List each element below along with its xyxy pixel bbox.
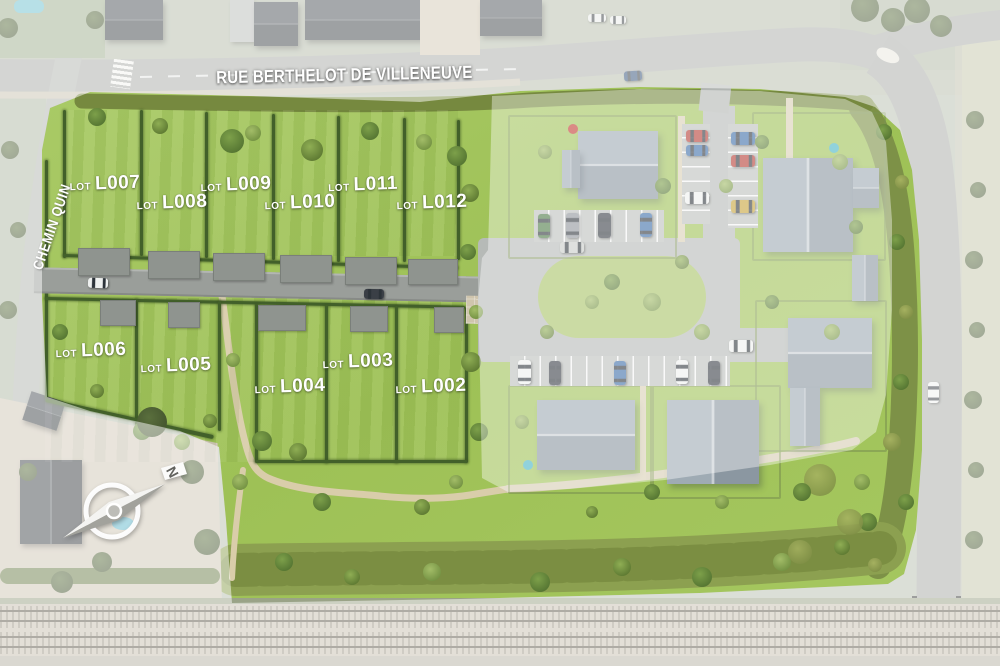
lot-label-L008[interactable]: LOTL008 [136,191,208,215]
lot-label-L009[interactable]: LOTL009 [200,173,272,197]
compass-rose: N [45,458,195,558]
lot-label-L012[interactable]: LOTL012 [396,191,468,215]
lot-label-L002[interactable]: LOTL002 [395,375,467,399]
lot-label-L006[interactable]: LOTL006 [55,339,127,363]
lot-label-L005[interactable]: LOTL005 [140,354,212,378]
lot-label-L003[interactable]: LOTL003 [322,350,394,374]
lot-label-L011[interactable]: LOTL011 [328,173,398,197]
labels-layer: RUE BERTHELOT DE VILLENEUVE CHEMIN QUIN … [0,0,1000,666]
street-label-side: CHEMIN QUIN [30,182,74,272]
lot-label-L004[interactable]: LOTL004 [254,375,326,399]
compass-hub [107,504,121,518]
lot-label-L010[interactable]: LOTL010 [264,191,336,215]
street-label-main: RUE BERTHELOT DE VILLENEUVE [216,63,473,88]
lot-label-L007[interactable]: LOTL007 [69,172,141,196]
site-plan-aerial: RUE BERTHELOT DE VILLENEUVE CHEMIN QUIN … [0,0,1000,666]
